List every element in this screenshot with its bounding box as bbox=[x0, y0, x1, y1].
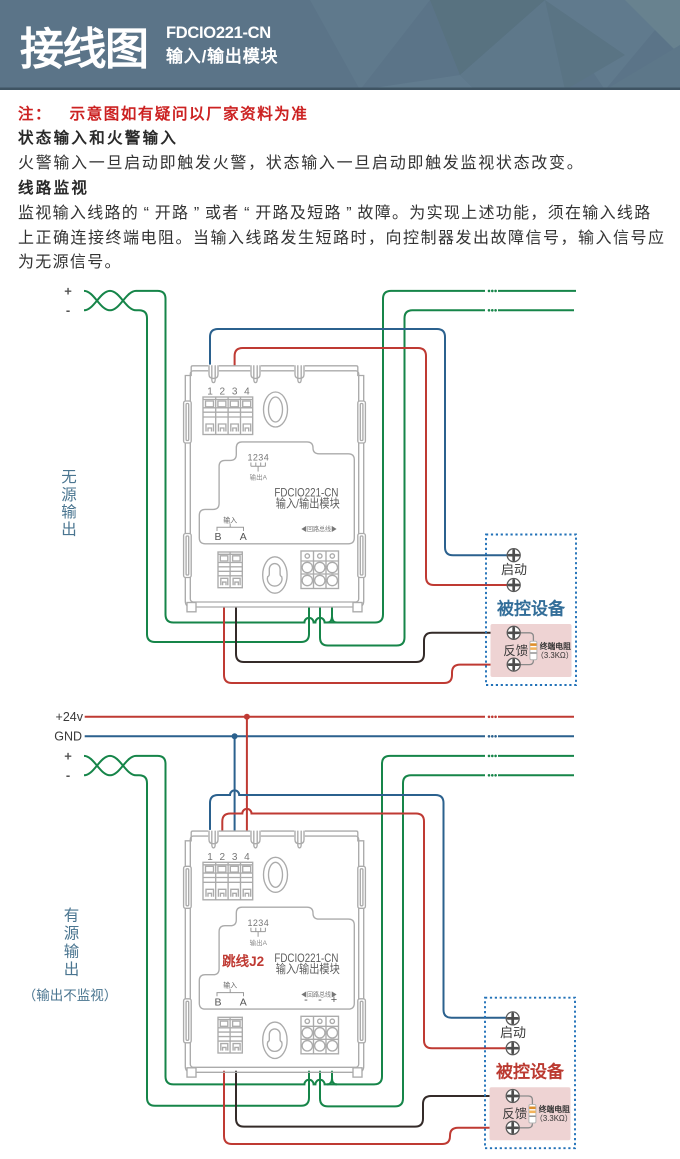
svg-text:+24v: +24v bbox=[56, 710, 84, 724]
svg-text:输: 输 bbox=[64, 942, 80, 960]
svg-text:无: 无 bbox=[61, 469, 77, 486]
svg-text:输: 输 bbox=[61, 503, 77, 521]
svg-text:+: + bbox=[64, 749, 72, 764]
svg-text:-: - bbox=[304, 994, 308, 1006]
svg-text:-: - bbox=[66, 768, 70, 783]
svg-text:跳线J2: 跳线J2 bbox=[222, 953, 264, 969]
svg-text:（输出不监视）: （输出不监视） bbox=[23, 988, 118, 1003]
svg-text:出: 出 bbox=[61, 520, 77, 538]
svg-text:出: 出 bbox=[64, 960, 80, 978]
svg-text:有: 有 bbox=[64, 906, 80, 924]
svg-text:-: - bbox=[318, 994, 322, 1006]
svg-text:源: 源 bbox=[64, 924, 80, 942]
svg-text:-: - bbox=[66, 303, 70, 318]
svg-text:+: + bbox=[331, 994, 337, 1006]
svg-text:+: + bbox=[64, 284, 72, 299]
svg-text:源: 源 bbox=[61, 486, 77, 504]
svg-text:GND: GND bbox=[54, 730, 82, 744]
